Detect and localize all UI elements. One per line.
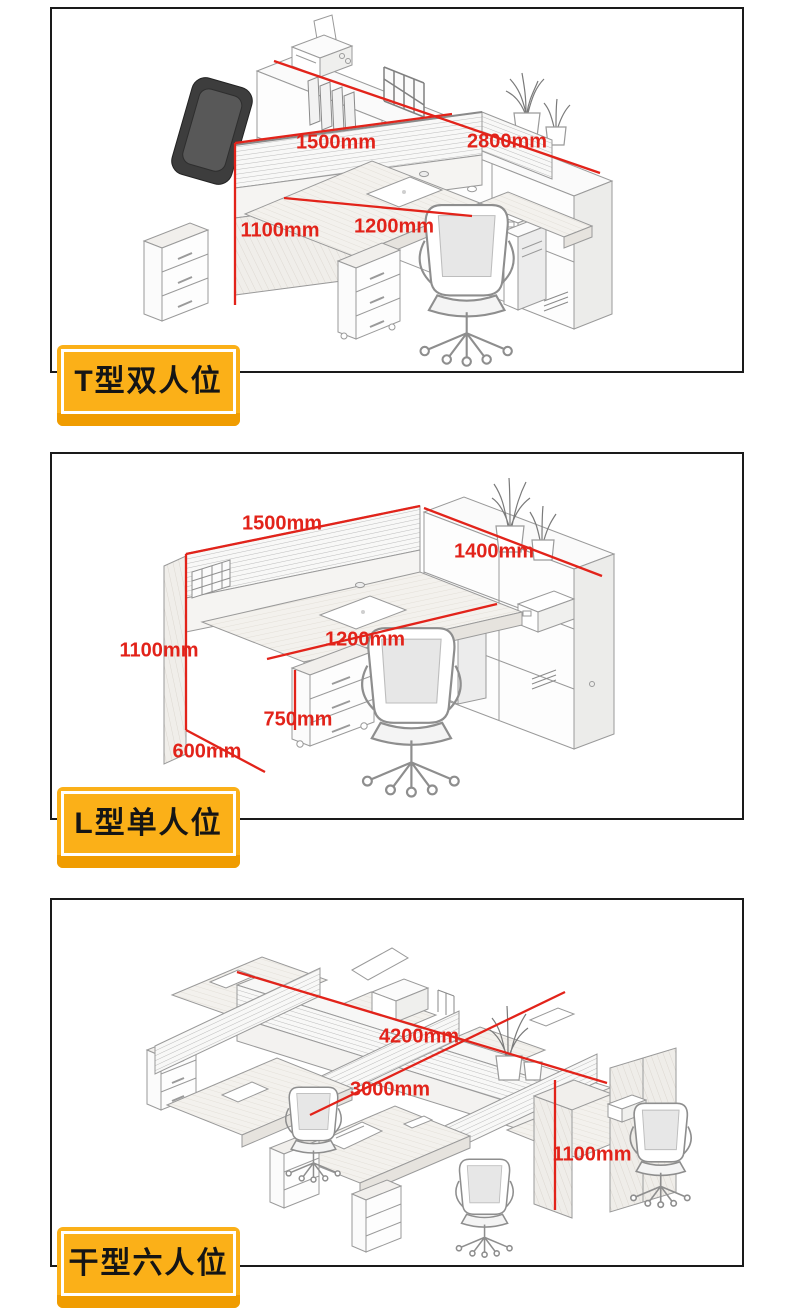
panel-gan-six: 4200mm 3000mm 1100mm xyxy=(50,898,744,1267)
mobile-pedestal xyxy=(352,1180,401,1252)
illustration-t-double-workstation xyxy=(52,9,742,371)
dim-label-600mm: 600mm xyxy=(173,741,242,764)
monitor-board xyxy=(352,948,408,980)
printer xyxy=(292,15,352,77)
dim-label-4200mm: 4200mm xyxy=(379,1026,459,1049)
mobile-pedestal xyxy=(338,243,400,339)
section-label-l-single: L型单人位 xyxy=(57,787,240,868)
dim-label-1100mm: 1100mm xyxy=(120,640,199,663)
dim-label-750mm: 750mm xyxy=(264,709,333,732)
desk-grommet xyxy=(420,171,429,176)
badge-shadow-strip xyxy=(57,413,240,426)
desk-grommet xyxy=(356,582,365,587)
dim-label-1500mm: 1500mm xyxy=(296,132,376,155)
badge-shadow-strip xyxy=(57,855,240,868)
panel-l-single: 1500mm 1400mm 1100mm 1200mm 750mm 600mm xyxy=(50,452,744,820)
mobile-pedestal xyxy=(144,223,208,321)
section-label-t-double: T型双人位 xyxy=(57,345,240,426)
section-label-text: L型单人位 xyxy=(74,809,222,839)
section-label-text: 干型六人位 xyxy=(69,1249,229,1279)
dim-label-1100mm: 1100mm xyxy=(241,220,320,243)
dim-label-1100mm: 1100mm xyxy=(553,1144,632,1167)
dim-label-3000mm: 3000mm xyxy=(350,1079,430,1102)
badge-shadow-strip xyxy=(57,1295,240,1308)
badge-inner-frame: T型双人位 xyxy=(61,349,236,414)
dim-label-2800mm: 2800mm xyxy=(467,131,547,154)
pc-tower xyxy=(504,220,546,310)
panel-t-double: 1500mm 2800mm 1100mm 1200mm xyxy=(50,7,744,373)
laptop xyxy=(530,1008,574,1026)
file-binders xyxy=(438,990,454,1018)
dim-label-1200mm: 1200mm xyxy=(354,216,434,239)
dim-label-1400mm: 1400mm xyxy=(454,541,534,564)
badge-inner-frame: 干型六人位 xyxy=(61,1231,236,1296)
mouse xyxy=(468,186,477,192)
section-label-text: T型双人位 xyxy=(74,367,222,397)
dim-label-1200mm: 1200mm xyxy=(325,629,405,652)
product-dimension-sheet: 1500mm 2800mm 1100mm 1200mm xyxy=(0,0,790,1314)
office-chair xyxy=(456,1159,513,1257)
badge-inner-frame: L型单人位 xyxy=(61,791,236,856)
section-label-gan-six: 干型六人位 xyxy=(57,1227,240,1308)
dim-label-1500mm: 1500mm xyxy=(242,513,322,536)
office-chair xyxy=(362,628,461,796)
